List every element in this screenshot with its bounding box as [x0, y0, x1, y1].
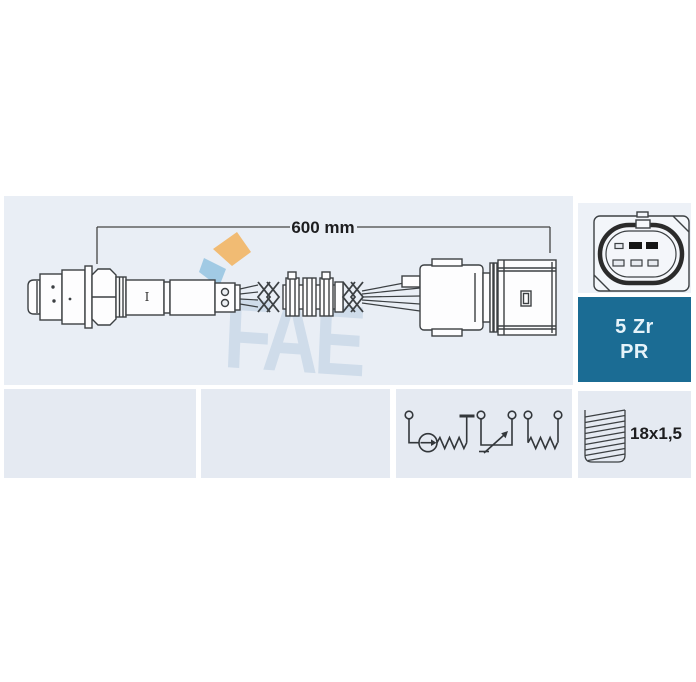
connector-pinout-panel — [578, 203, 691, 293]
badge-line-2: PR — [620, 340, 649, 365]
wiring-schematic-icon — [396, 389, 572, 478]
thread-size-label: 18x1,5 — [630, 424, 682, 444]
thread-spec-panel: 18x1,5 — [578, 391, 691, 478]
empty-panel-1 — [4, 389, 196, 478]
badge-line-1: 5 Zr — [615, 315, 654, 340]
fae-watermark-text: FAE — [222, 288, 363, 387]
product-diagram-image: 5 Zr PR — [0, 0, 696, 682]
schematic-panel — [396, 389, 572, 478]
connector-face-icon — [578, 203, 691, 293]
spec-badge: 5 Zr PR — [578, 297, 691, 382]
empty-panel-2 — [201, 389, 390, 478]
